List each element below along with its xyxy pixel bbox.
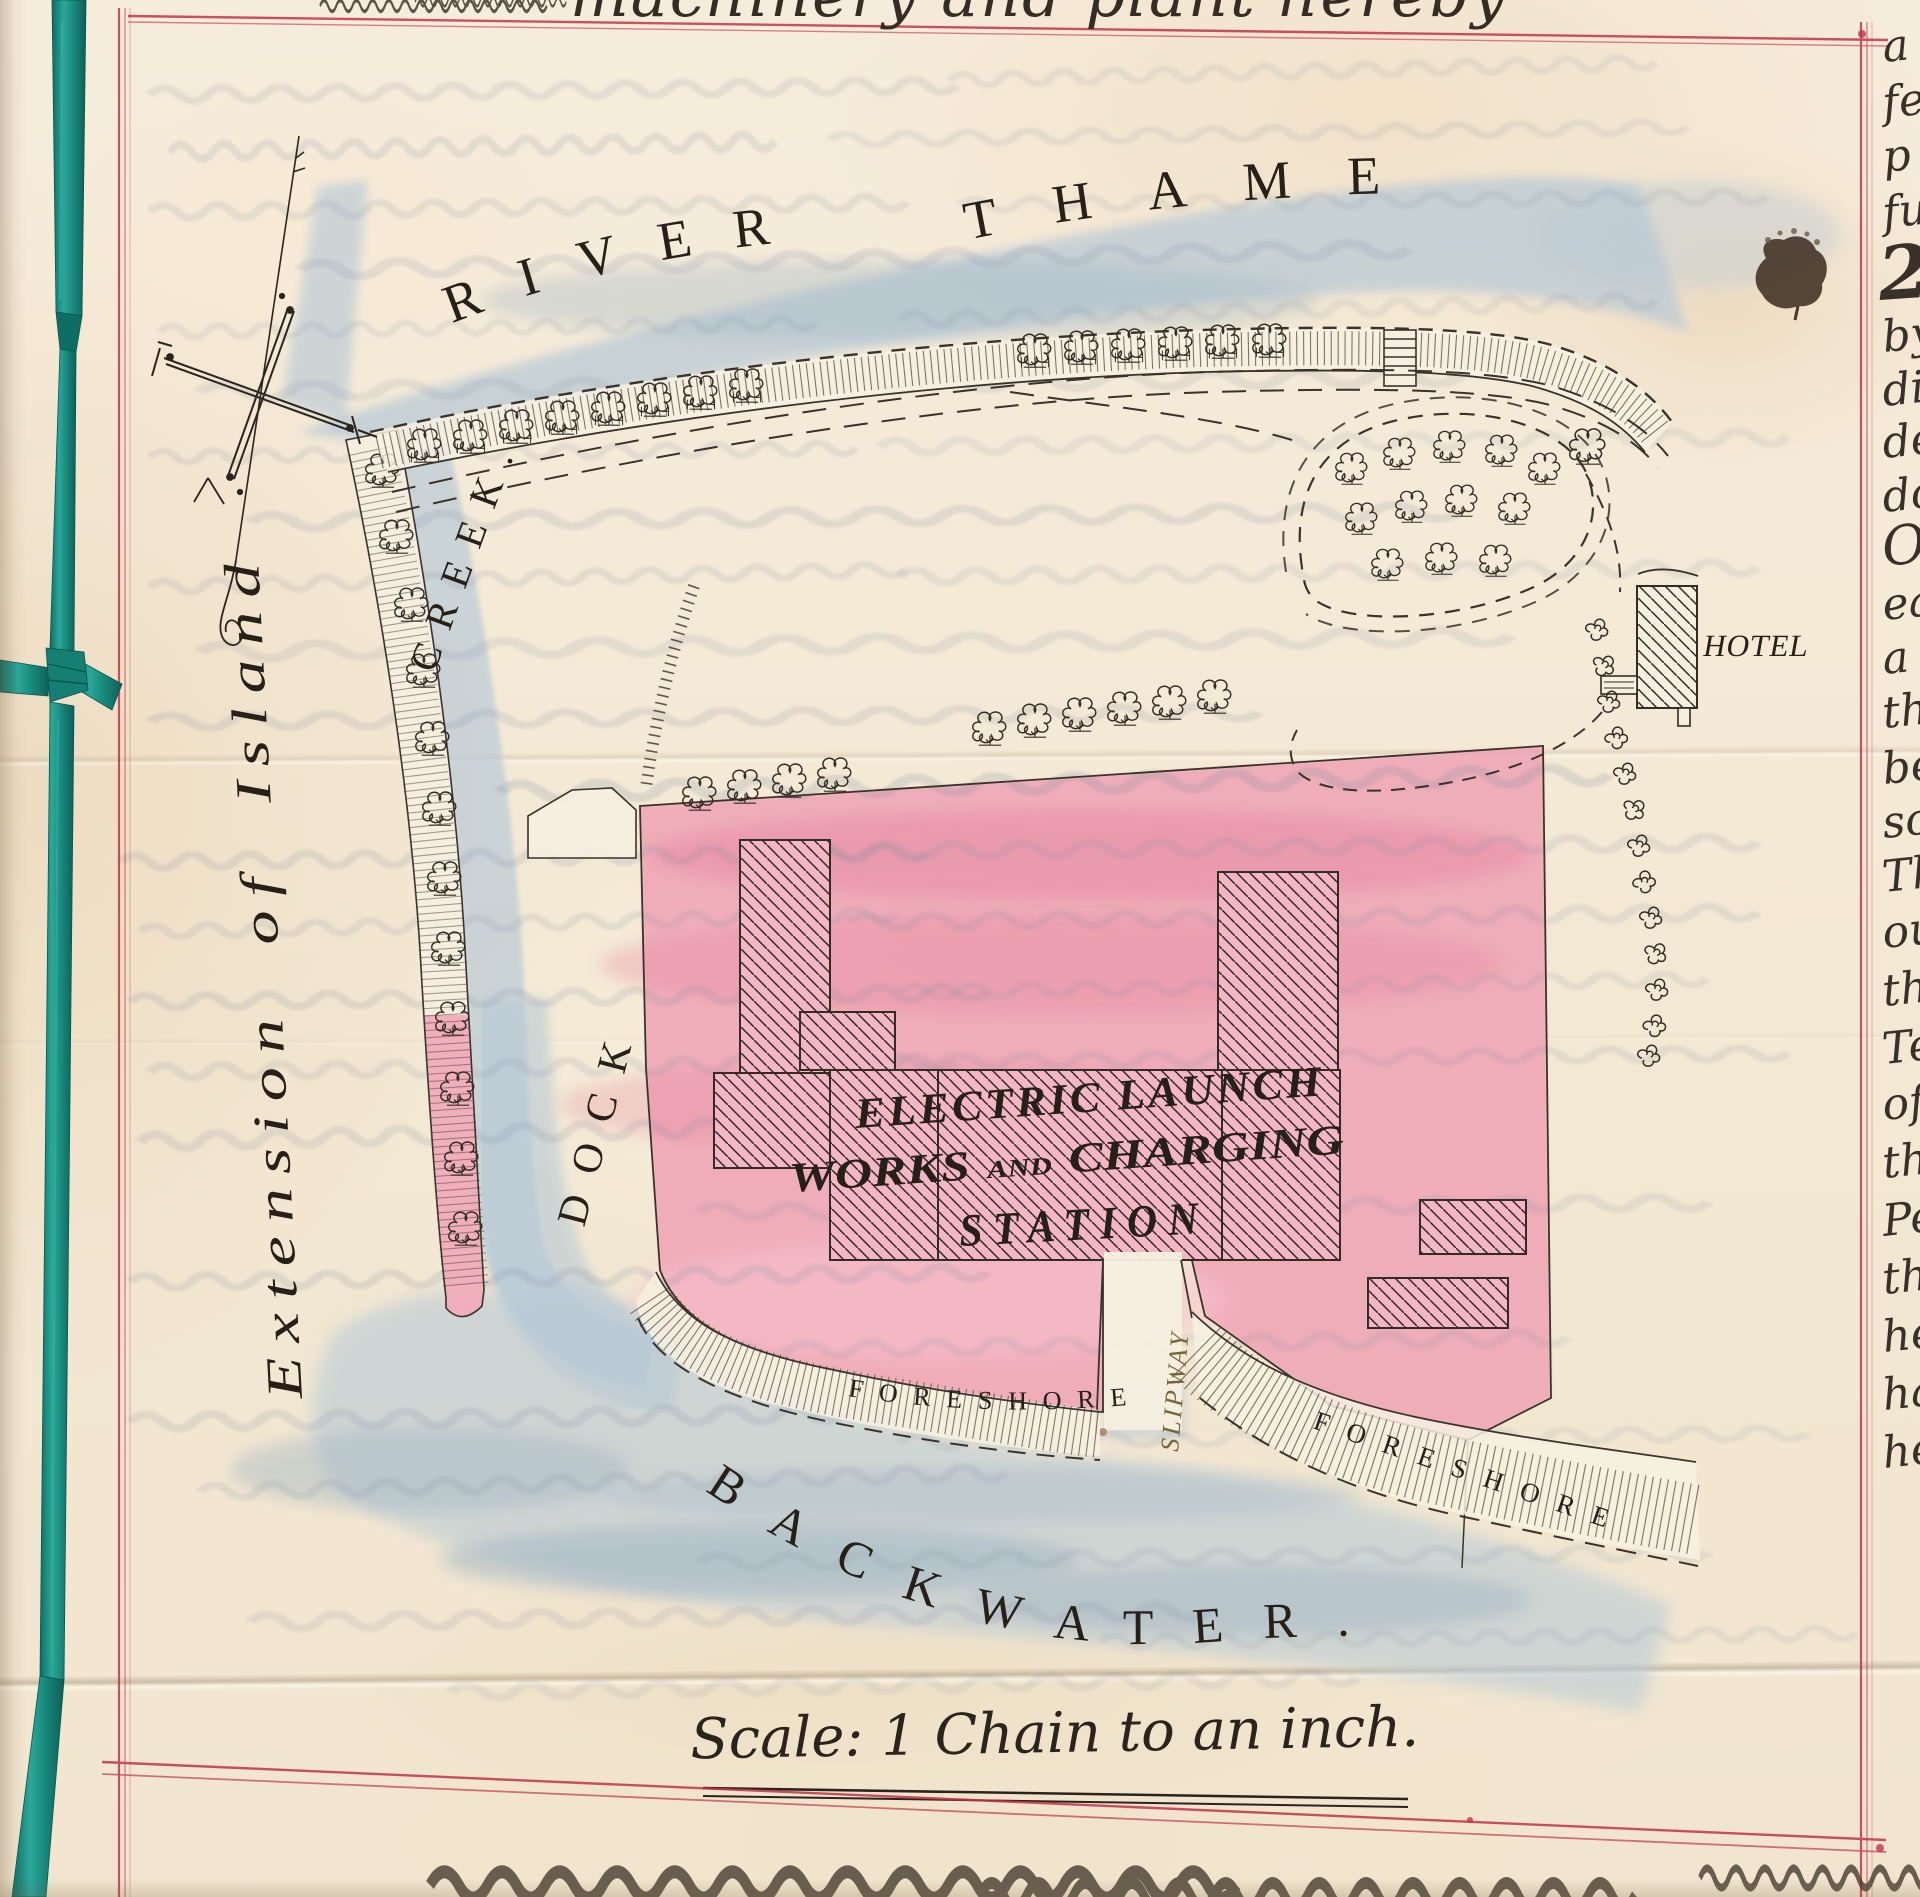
svg-text:th: th <box>1880 683 1920 739</box>
svg-text:fe: fe <box>1877 74 1920 129</box>
svg-text:p: p <box>1880 129 1913 183</box>
island-extension-label: Extension of Island <box>213 549 313 1402</box>
deed-map-svg: RIVER THAMES CREEK. DOCK BACKWATER. FORE… <box>0 0 1920 1897</box>
svg-text:th: th <box>1880 961 1920 1017</box>
svg-text:Te: Te <box>1880 1019 1920 1075</box>
scale-caption: Scale: 1 Chain to an inch. <box>690 1695 1420 1773</box>
svg-text:so: so <box>1880 793 1920 849</box>
svg-text:the: the <box>1880 1131 1920 1189</box>
svg-text:de: de <box>1880 413 1920 469</box>
deed-page: RIVER THAMES CREEK. DOCK BACKWATER. FORE… <box>0 0 1920 1897</box>
svg-text:be: be <box>1880 739 1920 795</box>
svg-text:26: 26 <box>1874 225 1920 318</box>
svg-text:ha: ha <box>1880 1365 1920 1421</box>
svg-text:by: by <box>1880 307 1920 363</box>
svg-text:he: he <box>1880 1307 1920 1363</box>
svg-text:a: a <box>1880 631 1911 684</box>
page-edge-shadow-left <box>0 0 26 1897</box>
svg-text:O: O <box>1879 512 1920 579</box>
svg-text:of: of <box>1880 1075 1920 1131</box>
svg-text:ou: ou <box>1880 902 1920 958</box>
svg-text:a: a <box>1880 19 1911 72</box>
ink-blot <box>1756 228 1827 320</box>
svg-text:di: di <box>1880 362 1920 417</box>
svg-text:ea: ea <box>1880 575 1920 631</box>
grove-trees <box>1336 429 1605 580</box>
svg-text:Pe: Pe <box>1879 1191 1920 1247</box>
svg-text:the: the <box>1880 1247 1920 1305</box>
right-margin-handwriting: a fe p fu 26 by di de do O ea a th be so… <box>1874 19 1920 1478</box>
svg-text:he: he <box>1880 1423 1920 1479</box>
river-bank <box>370 324 1672 472</box>
page-edge-shadow-bottom <box>0 1879 1920 1897</box>
svg-text:machinery and plant hereby: machinery and plant hereby <box>570 0 1508 31</box>
hotel-label: HOTEL <box>1701 628 1819 663</box>
river-steps-ladder <box>1384 330 1416 386</box>
hotel-grove <box>1283 397 1620 790</box>
hotel-building <box>1601 569 1698 726</box>
svg-text:Th: Th <box>1880 846 1920 903</box>
